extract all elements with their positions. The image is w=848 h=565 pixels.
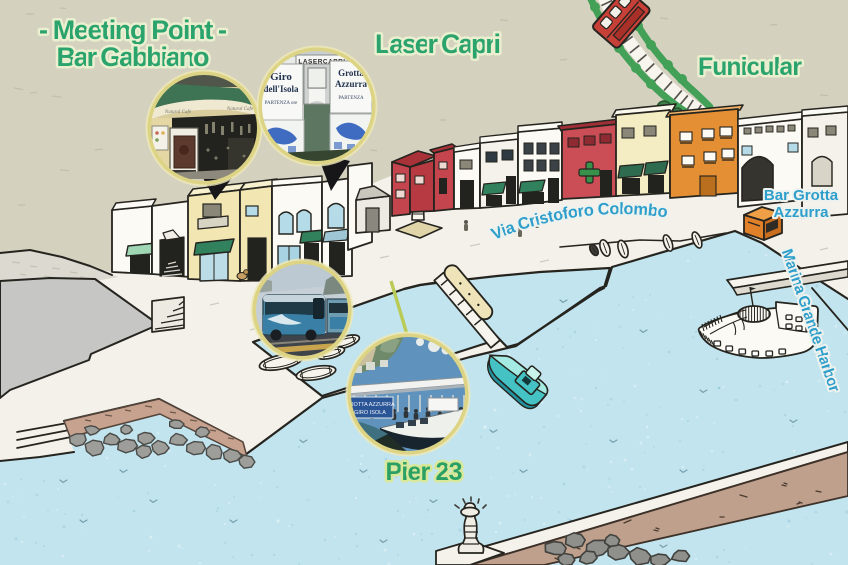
svg-text:PARTENZA ore: PARTENZA ore bbox=[265, 101, 298, 106]
svg-text:Natural Cafe: Natural Cafe bbox=[164, 110, 192, 115]
svg-text:GROTTA AZZURRA: GROTTA AZZURRA bbox=[345, 402, 395, 408]
svg-text:Bar Gabbiano: Bar Gabbiano bbox=[57, 42, 210, 72]
svg-text:- Meeting Point -: - Meeting Point - bbox=[39, 15, 227, 45]
svg-text:Pier 23: Pier 23 bbox=[386, 458, 463, 486]
svg-text:Funicular: Funicular bbox=[698, 53, 802, 81]
svg-text:Laser Capri: Laser Capri bbox=[375, 29, 501, 59]
svg-text:GIRO ISOLA: GIRO ISOLA bbox=[354, 410, 386, 416]
svg-text:dell'Isola: dell'Isola bbox=[263, 84, 299, 94]
svg-text:Bar Grotta: Bar Grotta bbox=[764, 187, 839, 204]
svg-text:Natural Cafe: Natural Cafe bbox=[226, 107, 254, 112]
svg-text:Giro: Giro bbox=[270, 71, 292, 83]
svg-text:PARTENZA: PARTENZA bbox=[338, 96, 364, 101]
svg-text:Azzurra: Azzurra bbox=[335, 79, 367, 89]
svg-text:Azzurra: Azzurra bbox=[773, 204, 829, 221]
